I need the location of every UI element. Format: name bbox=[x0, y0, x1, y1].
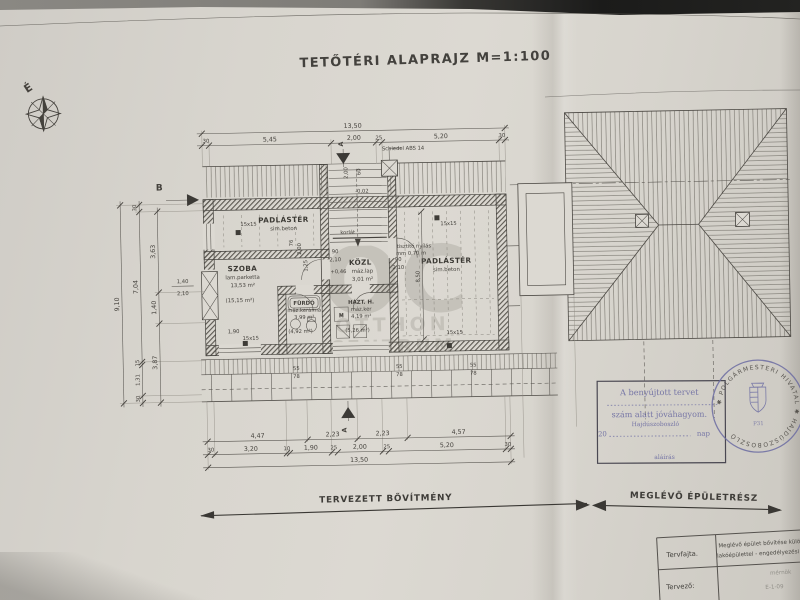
stamp-day: nap bbox=[697, 430, 711, 438]
stair-width-dim: 2,00 bbox=[343, 166, 349, 179]
room-furdo-finish: máz.kerámia bbox=[287, 307, 321, 315]
dim-left-total: 9,10 bbox=[114, 297, 121, 311]
dim-bot2: 1,90 bbox=[304, 445, 318, 452]
room-attic-right-finish: sim.beton bbox=[433, 267, 460, 274]
seal-ring-text: ✱ POLGÁRMESTERI HIVATAL ✱ HAJDÚSZOBOSZLÓ bbox=[715, 363, 800, 449]
stamp-year: 20 bbox=[598, 430, 607, 438]
door1-height: 2,10 bbox=[329, 257, 342, 263]
dim-bot1: 4,47 bbox=[251, 433, 265, 440]
dim-bot2: 25 bbox=[383, 444, 390, 450]
dim-bot2: 30 bbox=[207, 448, 214, 454]
room-hazt-finish: máz.ker bbox=[351, 306, 373, 313]
railing-label: korlát bbox=[340, 229, 355, 236]
dim-bot1: 4,57 bbox=[451, 429, 465, 436]
column-label-2: 15x15 bbox=[440, 221, 456, 227]
dim-left-inner: 3,87 bbox=[152, 356, 159, 370]
drawing-svg: OC OTTHON CENTRUM TETŐTÉRI ALAPRAJZ M=1:… bbox=[0, 0, 800, 600]
section-a-bottom: A bbox=[341, 427, 348, 432]
dim-top-seg: 30 bbox=[202, 139, 209, 145]
attic-depth-dim: 8,50 bbox=[415, 270, 421, 283]
room-szoba: SZOBA bbox=[228, 264, 258, 274]
title-block: Tervfajta. Meglévő épület bővítése külön… bbox=[657, 529, 800, 600]
sheet-content: OC OTTHON CENTRUM TETŐTÉRI ALAPRAJZ M=1:… bbox=[21, 43, 800, 600]
window-dim-h: 2,10 bbox=[177, 291, 190, 297]
eaves-dim: 78 bbox=[470, 371, 477, 377]
svg-text:✱ POLGÁRMESTERI HIVATAL ✱ HAJD: ✱ POLGÁRMESTERI HIVATAL ✱ HAJDÚSZOBOSZLÓ bbox=[715, 363, 800, 449]
room-szoba-gross: (15,15 m²) bbox=[226, 297, 255, 305]
section-b: B bbox=[156, 184, 163, 194]
projection-lines bbox=[644, 340, 714, 419]
connecting-annex bbox=[506, 183, 574, 306]
dim-bot2: 3,20 bbox=[244, 446, 258, 453]
north-label: É bbox=[21, 81, 34, 96]
door2-width: 90 bbox=[395, 257, 402, 263]
knee-dim-b: 2,00 bbox=[297, 242, 303, 255]
dim-left-mid: 30 bbox=[132, 204, 138, 211]
dim-top-seg: 5,45 bbox=[263, 136, 277, 143]
room-furdo: FÜRDŐ bbox=[293, 300, 315, 307]
chimney-label: Schiedel ABS 14 bbox=[382, 145, 425, 152]
dim-top-seg: 2,00 bbox=[347, 135, 361, 142]
paper-crease-right bbox=[545, 90, 800, 97]
room-attic-left-finish: sim.beton bbox=[270, 226, 297, 233]
titleblock-row1-value: lakóépülettel - engedélyezési terv bbox=[717, 547, 800, 559]
room-hazt: HÁZT. H. bbox=[348, 299, 374, 306]
stamp-line2: szám alatt jóváhagyom. bbox=[612, 410, 707, 419]
stamp-signature-label: aláírás bbox=[654, 454, 675, 461]
room-kozl: KÖZL bbox=[349, 258, 372, 267]
dim-left-mid: 7,04 bbox=[133, 280, 140, 294]
compass-rose: É bbox=[21, 80, 60, 131]
eaves-dim: 55 bbox=[396, 364, 403, 370]
szoba-window-dim: 1,90 bbox=[228, 329, 241, 335]
paper-crease-top bbox=[0, 13, 800, 26]
room-attic-right: PADLÁSTÉR bbox=[421, 256, 472, 266]
column-label-3: 15x15 bbox=[446, 330, 462, 336]
section-a-top: A bbox=[338, 141, 345, 146]
titleblock-row2-value: mérnök bbox=[770, 569, 792, 577]
legend-existing-building: MEGLÉVŐ ÉPÜLETRÉSZ bbox=[630, 489, 758, 504]
titleblock-row2-label: Tervező: bbox=[665, 581, 695, 592]
dim-left-inner: 3,63 bbox=[150, 245, 157, 259]
eaves-dim: 78 bbox=[293, 374, 300, 380]
cleanout-label-1: tisztító nyílás bbox=[397, 242, 432, 250]
knee-dim-a: 76 bbox=[289, 239, 295, 246]
dim-top-total: 13,50 bbox=[344, 123, 362, 130]
room-szoba-finish: lam.parketta bbox=[225, 275, 260, 282]
dim-left-inner: 1,40 bbox=[151, 301, 158, 315]
knee-dim-c: 1,25 bbox=[303, 260, 309, 272]
official-seal: ✱ POLGÁRMESTERI HIVATAL ✱ HAJDÚSZOBOSZLÓ… bbox=[711, 359, 800, 453]
dim-top-seg: 5,20 bbox=[434, 133, 448, 140]
scanned-floor-plan-sheet: OC OTTHON CENTRUM TETŐTÉRI ALAPRAJZ M=1:… bbox=[0, 0, 800, 600]
eaves-dim: 55 bbox=[470, 363, 477, 369]
dim-bottom-total: 13,50 bbox=[350, 457, 368, 464]
dim-bot2: 2,00 bbox=[353, 444, 367, 451]
coat-of-arms bbox=[750, 383, 767, 412]
room-attic-left: PADLÁSTÉR bbox=[258, 215, 309, 225]
dim-left-mid: 30 bbox=[136, 395, 142, 402]
page-title: TETŐTÉRI ALAPRAJZ M=1:100 bbox=[299, 48, 551, 71]
room-furdo-gross: (4,92 m²) bbox=[288, 329, 313, 335]
room-hazt-gross: (5,26 m²) bbox=[345, 328, 370, 334]
eaves-dim: 78 bbox=[396, 372, 403, 378]
room-hazt-area: 4,19 m² bbox=[351, 314, 371, 320]
dim-left-mid: 15 bbox=[135, 360, 141, 367]
legend-new-extension: TERVEZETT BŐVÍTMÉNY bbox=[319, 491, 452, 506]
seal-number: P31 bbox=[753, 421, 764, 427]
room-kozl-area: 3,01 m² bbox=[352, 276, 373, 283]
dim-bot2: 30 bbox=[504, 442, 511, 448]
room-szoba-area: 13,53 m² bbox=[230, 282, 255, 289]
boundary-marker bbox=[576, 499, 590, 510]
room-furdo-area: 3,99 m² bbox=[294, 315, 314, 321]
room-kozl-level: +0,46 bbox=[330, 269, 346, 275]
washer-label: M bbox=[339, 313, 344, 319]
stair-level-label: -0,02 bbox=[355, 189, 369, 195]
approval-stamp: A benyújtott tervet szám alatt jóváhagyo… bbox=[597, 381, 725, 464]
stamp-line1: A benyújtott tervet bbox=[619, 387, 699, 397]
dim-bot2: 25 bbox=[330, 445, 337, 451]
titleblock-row2-value: E-1-09 bbox=[765, 584, 784, 591]
stair-offset-dim: 60 bbox=[356, 168, 362, 175]
dim-bot2: 10 bbox=[283, 446, 290, 452]
dim-top-seg: 30 bbox=[498, 133, 505, 139]
door2-height: 2,10 bbox=[392, 265, 405, 271]
dim-top-seg: 25 bbox=[375, 135, 382, 141]
column-label-1: 15x15 bbox=[240, 222, 256, 228]
stamp-city: Hajdúszoboszló bbox=[632, 421, 680, 428]
dim-bot1: 2,23 bbox=[375, 430, 389, 437]
balcony-door bbox=[201, 271, 218, 319]
legend: TERVEZETT BŐVÍTMÉNY MEGLÉVŐ ÉPÜLETRÉSZ bbox=[200, 485, 782, 525]
room-kozl-finish: máz.lap bbox=[352, 268, 374, 275]
eaves-dim: 55 bbox=[293, 366, 300, 372]
titleblock-row1-value: Meglévő épület bővítése különálló bbox=[718, 537, 800, 549]
door1-width: 90 bbox=[332, 249, 339, 255]
titleblock-row1-label: Tervfajta. bbox=[665, 550, 698, 560]
dim-bot2: 5,20 bbox=[440, 442, 454, 449]
window-dim-w: 1,40 bbox=[177, 279, 190, 285]
column-label-4: 15x15 bbox=[243, 336, 259, 342]
dim-left-mid: 1,31 bbox=[135, 374, 141, 386]
arrow-left bbox=[200, 511, 214, 519]
dim-bot1: 2,23 bbox=[325, 431, 339, 438]
